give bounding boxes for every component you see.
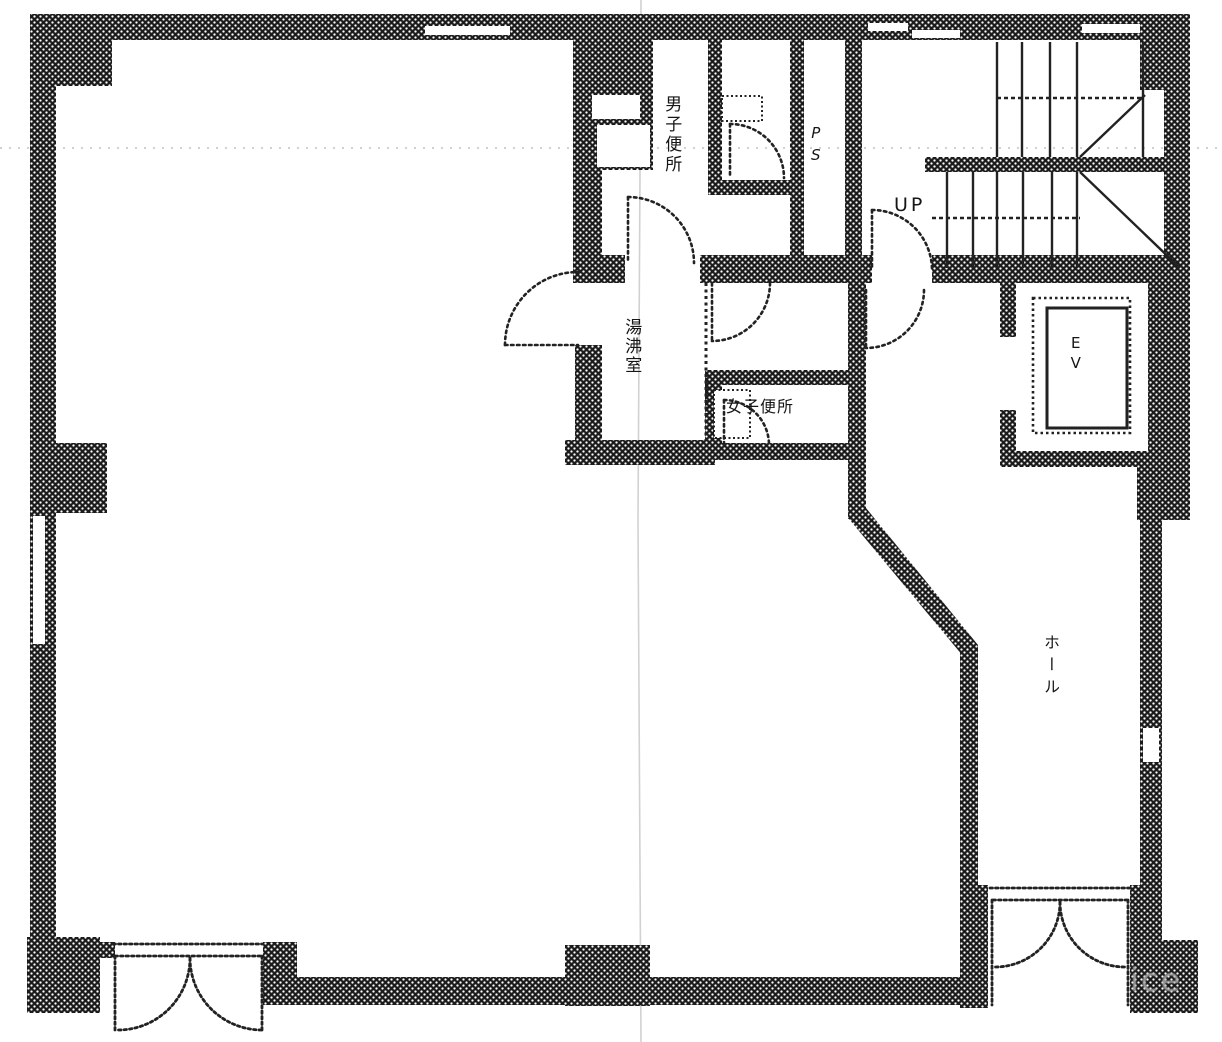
window-slit [868, 23, 908, 31]
floor-plan: 男子便所 PS UP EV 湯沸室 女子便所 ホール ice [0, 0, 1222, 1042]
window-slit [1143, 728, 1159, 762]
column [27, 937, 100, 1013]
column [263, 942, 297, 1005]
room-label-womens-toilet: 女子便所 [726, 397, 794, 417]
room-label-pipe-space: PS [806, 124, 825, 168]
column [30, 443, 107, 513]
wall-stairs-mid [925, 157, 1165, 172]
wall-mens-stall [708, 180, 790, 195]
ev-car-inner [1047, 308, 1127, 428]
door-swing-arc [190, 958, 262, 1030]
column [1140, 14, 1190, 90]
wall-womens-bottom [705, 443, 848, 460]
column [1130, 885, 1162, 943]
room-label-hall: ホール [1040, 634, 1060, 700]
fixture-niche [597, 125, 650, 167]
wall-right-lower [1140, 520, 1162, 900]
wall-ev-left-a [1000, 283, 1016, 337]
wall-ev-right [1148, 283, 1164, 467]
door-swing-arc [712, 283, 770, 341]
window-slit [912, 30, 960, 38]
wall-womens-top [705, 370, 862, 385]
window-slit [1082, 24, 1140, 33]
door-swing-arc [118, 958, 190, 1030]
wall-band [573, 255, 625, 283]
door-swing-arc [1060, 902, 1125, 967]
door-swing-arc [995, 902, 1060, 967]
wall-band [700, 255, 872, 283]
room-label-mens-toilet: 男子便所 [660, 95, 681, 175]
room-label-kitchenette: 湯沸室 [620, 318, 641, 375]
column [30, 14, 112, 86]
floor-plan-drawing [0, 0, 1222, 1042]
wall-hall-west [960, 645, 978, 888]
door-swing-arc [866, 290, 924, 348]
wall-west-below-door [575, 345, 602, 440]
door-swing-arc [628, 197, 694, 263]
room-label-elevator: EV [1066, 334, 1085, 374]
wall-hall-west-pier [960, 885, 988, 1008]
wall-mens-partition [708, 40, 722, 180]
window-slit [33, 516, 45, 644]
wall-hall-diagonal [849, 508, 978, 656]
wall-stair-left [845, 40, 862, 270]
window-slit [425, 26, 510, 35]
stairs-direction-label: UP [894, 194, 925, 218]
stairs-group [932, 42, 1180, 268]
column [1137, 460, 1190, 520]
column [565, 945, 650, 1006]
wall-kitchenette-bottom [565, 440, 715, 465]
door-swing-arc [505, 272, 578, 345]
wall-band [932, 255, 1190, 283]
toilet-fixture [722, 96, 762, 121]
wall-ps-left [790, 40, 804, 270]
door-swing-arc [730, 124, 784, 178]
wall-corridor-east [848, 270, 866, 519]
fixture-niche [592, 95, 640, 119]
watermark-text: ice [1130, 960, 1182, 1000]
door-swing-arc [872, 210, 932, 270]
ev-door-slit [1001, 337, 1015, 410]
wall-ev-bottom [1000, 451, 1164, 467]
